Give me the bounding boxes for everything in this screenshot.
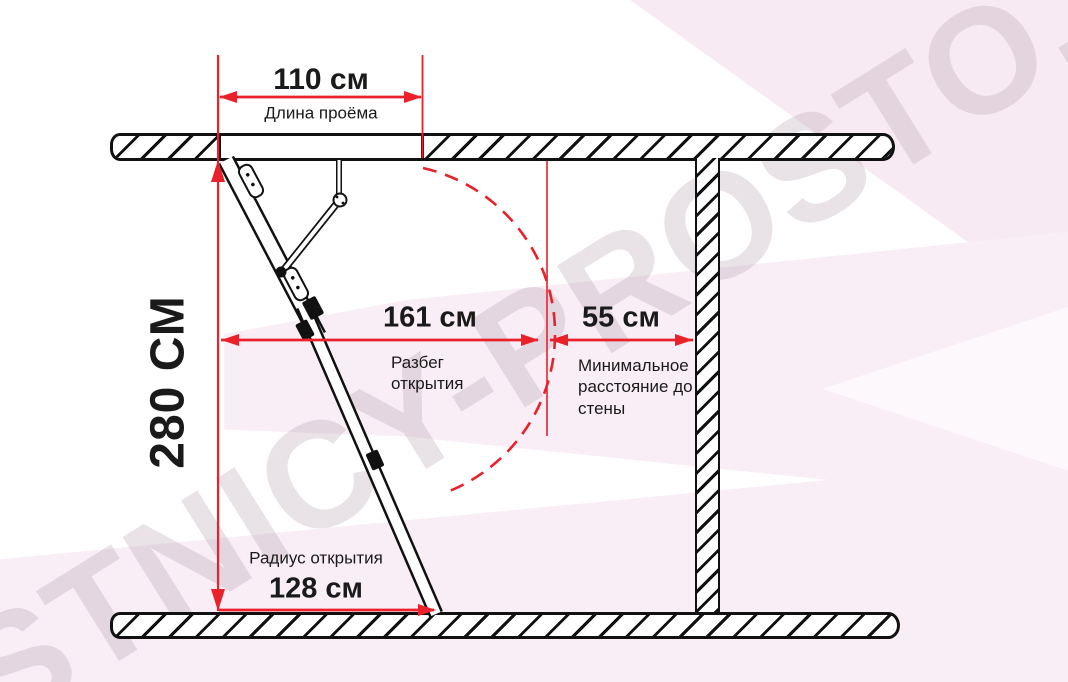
floor-band: [110, 612, 900, 639]
diagram-linework: [0, 0, 1068, 682]
ceiling-hatch-right: [424, 136, 892, 158]
wall-band: [695, 158, 720, 614]
background-shape-middle-band: [0, 0, 1068, 682]
watermark-text: LESTNICY-PROSTO.RU: [0, 0, 1068, 682]
dim-opening-radius-label: Радиус открытия: [249, 547, 383, 568]
dim-opening-run-label: Разбег открытия: [391, 352, 476, 395]
ceiling-opening: [218, 136, 424, 158]
dim-wall-distance-value: 55 см: [582, 302, 660, 335]
ceiling-band: [110, 133, 895, 161]
background-shape-bottom: [0, 0, 1068, 682]
dim-ceiling-height-value: 280 СМ: [141, 295, 196, 468]
swing-arc: [423, 168, 555, 492]
hinge-plate: [237, 163, 265, 200]
dim-opening-run-value: 161 см: [383, 302, 477, 335]
dim-opening-length-label: Длина проёма: [264, 102, 377, 123]
background-shape-white-notch: [0, 0, 1068, 682]
background-shape-top-right: [0, 0, 1068, 682]
ceiling-hatch-left: [113, 136, 218, 158]
dim-opening-length-value: 110 см: [273, 63, 369, 97]
attic-ladder: [226, 160, 436, 614]
hinge-plate: [282, 266, 310, 303]
dim-opening-radius-value: 128 см: [269, 573, 363, 606]
attic-ladder-dimension-diagram: LESTNICY-PROSTO.RU: [0, 0, 1068, 682]
